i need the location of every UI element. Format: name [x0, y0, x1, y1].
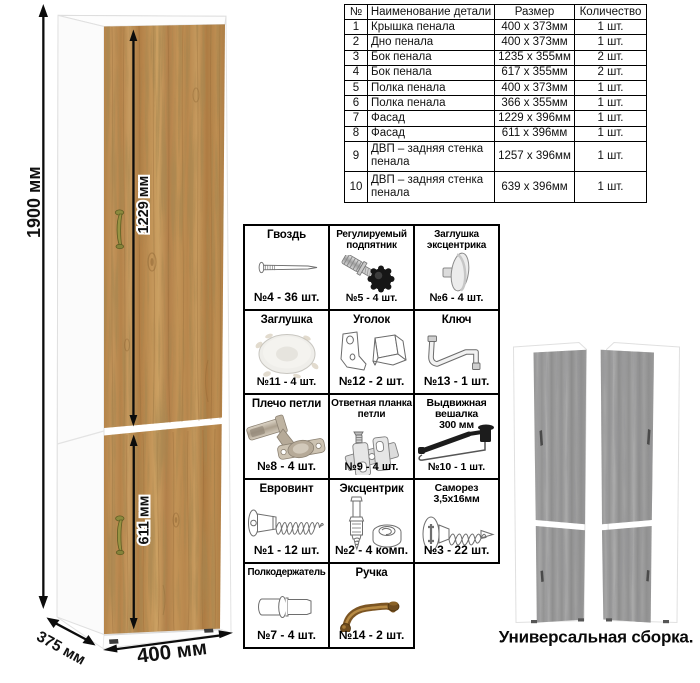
svg-text:Универсальная сборка.: Универсальная сборка. — [499, 628, 693, 647]
svg-text:1900 мм: 1900 мм — [24, 166, 44, 238]
svg-text:1229 мм: 1229 мм — [136, 176, 152, 234]
svg-text:375 мм: 375 мм — [34, 628, 89, 669]
svg-text:611 мм: 611 мм — [137, 496, 153, 545]
